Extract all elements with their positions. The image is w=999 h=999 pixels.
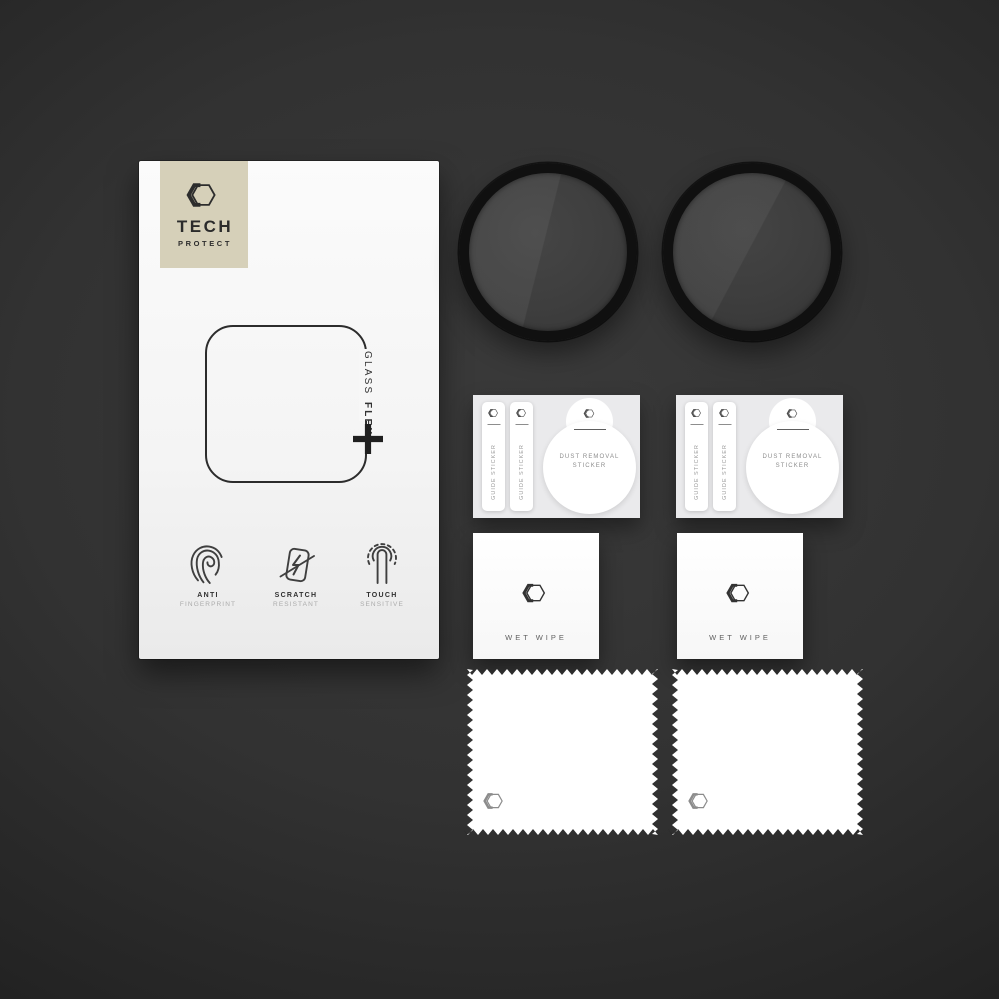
techprotect-hex-icon bbox=[687, 789, 713, 813]
product-photo: { "colors": { "background_center": "#3a3… bbox=[0, 0, 999, 999]
guide-sticker: GUIDE STICKER bbox=[482, 402, 505, 511]
watch-screen-outline: GLASSFLEX bbox=[205, 325, 367, 483]
techprotect-hex-icon bbox=[725, 579, 755, 607]
techprotect-hex-icon bbox=[487, 407, 500, 419]
glass-disc-2 bbox=[663, 163, 841, 341]
microfiber-cloth-2 bbox=[672, 669, 863, 835]
dust-removal-label: DUST REMOVAL STICKER bbox=[746, 453, 839, 471]
wet-wipe-2: WET WIPE bbox=[677, 533, 803, 659]
scratch-resistant-icon bbox=[274, 543, 318, 587]
guide-sticker: GUIDE STICKER bbox=[510, 402, 533, 511]
guide-sticker: GUIDE STICKER bbox=[685, 402, 708, 511]
brand-badge: TECH PROTECT bbox=[160, 161, 248, 268]
feature-scratch-resistant: SCRATCH RESISTANT bbox=[251, 541, 341, 608]
dust-removal-label: DUST REMOVAL STICKER bbox=[543, 453, 636, 471]
sticker-sheet-1: GUIDE STICKER GUIDE STICKER DUST REMOVAL… bbox=[473, 395, 640, 518]
guide-sticker: GUIDE STICKER bbox=[713, 402, 736, 511]
techprotect-hex-icon bbox=[521, 579, 551, 607]
fingerprint-icon bbox=[184, 539, 232, 590]
techprotect-hex-icon bbox=[690, 407, 703, 419]
techprotect-hex-icon bbox=[718, 407, 731, 419]
plus-icon bbox=[350, 421, 386, 457]
divider-line bbox=[718, 424, 731, 425]
glass-disc-1 bbox=[459, 163, 637, 341]
divider-line bbox=[515, 424, 528, 425]
brand-name: TECH bbox=[177, 217, 233, 237]
feature-row: ANTI FINGERPRINT SCRATCH RESISTANT bbox=[139, 541, 439, 621]
brand-subname: PROTECT bbox=[178, 239, 232, 248]
techprotect-hex-icon bbox=[583, 407, 597, 420]
microfiber-cloth-1 bbox=[467, 669, 658, 835]
sticker-sheet-2: GUIDE STICKER GUIDE STICKER DUST REMOVAL… bbox=[676, 395, 843, 518]
divider-line bbox=[690, 424, 703, 425]
package-box: TECH PROTECT GLASSFLEX ANTI FINGER bbox=[139, 161, 439, 659]
techprotect-logo-icon bbox=[185, 177, 223, 213]
dust-removal-sticker: DUST REMOVAL STICKER bbox=[543, 398, 636, 515]
feature-touch-sensitive: TOUCH SENSITIVE bbox=[337, 541, 427, 608]
techprotect-hex-icon bbox=[786, 407, 800, 420]
wet-wipe-1: WET WIPE bbox=[473, 533, 599, 659]
divider-line bbox=[487, 424, 500, 425]
techprotect-hex-icon bbox=[482, 789, 508, 813]
feature-anti-fingerprint: ANTI FINGERPRINT bbox=[163, 541, 253, 608]
dust-removal-sticker: DUST REMOVAL STICKER bbox=[746, 398, 839, 515]
techprotect-hex-icon bbox=[515, 407, 528, 419]
touch-sensitive-icon bbox=[360, 539, 404, 587]
divider-line bbox=[777, 429, 809, 430]
divider-line bbox=[574, 429, 606, 430]
